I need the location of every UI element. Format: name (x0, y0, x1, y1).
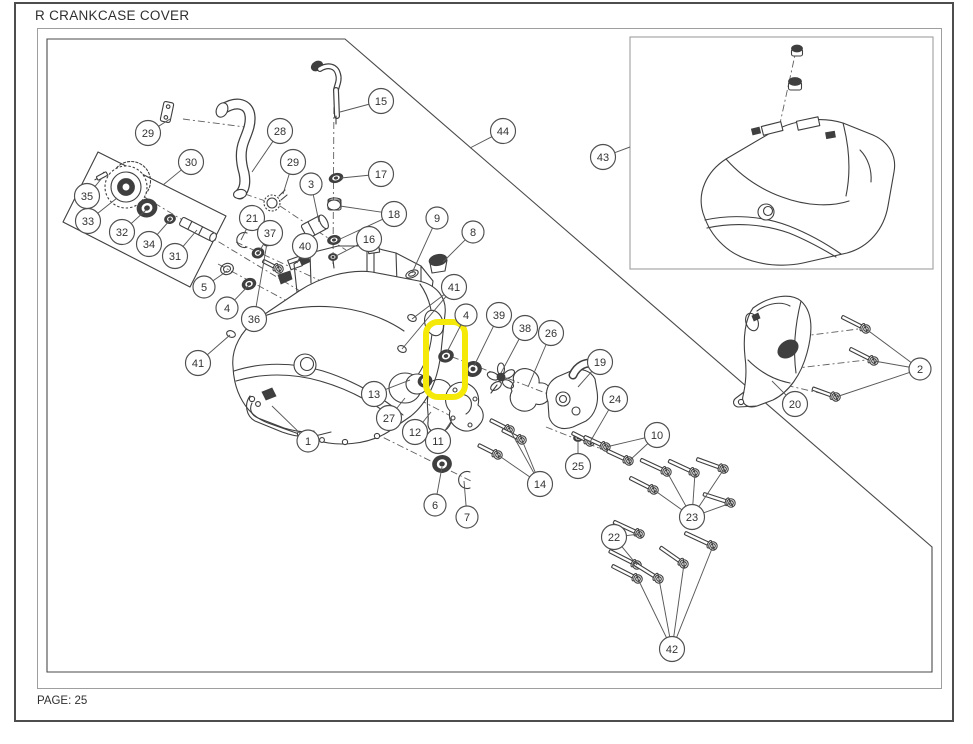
callout-36[interactable]: 36 (242, 307, 267, 332)
callout-8[interactable]: 8 (462, 221, 484, 243)
callout-18[interactable]: 18 (382, 202, 407, 227)
svg-text:14: 14 (534, 479, 546, 491)
svg-text:31: 31 (169, 251, 181, 263)
svg-text:6: 6 (432, 500, 438, 512)
callout-2[interactable]: 2 (909, 358, 931, 380)
callout-40[interactable]: 40 (293, 234, 318, 259)
svg-text:18: 18 (388, 209, 400, 221)
svg-text:41: 41 (192, 358, 204, 370)
callout-5[interactable]: 5 (193, 276, 215, 298)
svg-text:10: 10 (651, 430, 663, 442)
svg-text:28: 28 (274, 126, 286, 138)
svg-text:41: 41 (448, 282, 460, 294)
callout-41[interactable]: 41 (186, 351, 211, 376)
svg-text:17: 17 (375, 169, 387, 181)
seal-ring (164, 213, 177, 225)
svg-text:2: 2 (917, 364, 923, 376)
callout-4[interactable]: 4 (455, 304, 477, 326)
callout-33[interactable]: 33 (76, 209, 101, 234)
svg-text:39: 39 (493, 310, 505, 322)
seal-ring (431, 454, 453, 475)
o-ring (405, 268, 420, 279)
callout-19[interactable]: 19 (588, 350, 613, 375)
svg-text:26: 26 (545, 328, 557, 340)
svg-text:20: 20 (789, 399, 801, 411)
callout-16[interactable]: 16 (357, 227, 382, 252)
svg-text:3: 3 (308, 179, 314, 191)
callout-15[interactable]: 15 (369, 89, 394, 114)
bolt (476, 441, 503, 460)
svg-text:7: 7 (464, 512, 470, 524)
svg-text:29: 29 (287, 157, 299, 169)
bolt (639, 456, 673, 478)
seal-ring (329, 254, 338, 261)
callout-42[interactable]: 42 (660, 637, 685, 662)
callout-27[interactable]: 27 (377, 406, 402, 431)
outer-cover-part-20 (734, 296, 811, 407)
callout-24[interactable]: 24 (603, 387, 628, 412)
callout-41[interactable]: 41 (442, 275, 467, 300)
callout-14[interactable]: 14 (528, 472, 553, 497)
svg-text:23: 23 (686, 512, 698, 524)
exploded-view-drawing: 1234456789101112131415161718192021222324… (0, 0, 973, 744)
bolt (840, 313, 872, 335)
svg-text:38: 38 (519, 323, 531, 335)
shaft-31 (179, 217, 218, 243)
bolt (683, 529, 718, 551)
callout-30[interactable]: 30 (179, 150, 204, 175)
svg-text:5: 5 (201, 282, 207, 294)
svg-text:24: 24 (609, 394, 621, 406)
bolt (702, 490, 736, 508)
filler-cap-8 (428, 253, 448, 273)
callout-29[interactable]: 29 (281, 150, 306, 175)
callout-10[interactable]: 10 (645, 423, 670, 448)
svg-text:37: 37 (264, 228, 276, 240)
svg-text:25: 25 (572, 461, 584, 473)
bolt (605, 447, 634, 467)
svg-text:4: 4 (224, 303, 230, 315)
bolt (628, 474, 660, 496)
svg-text:8: 8 (470, 227, 476, 239)
svg-text:27: 27 (383, 413, 395, 425)
seal-ring (241, 276, 258, 291)
svg-text:44: 44 (497, 126, 509, 138)
callout-20[interactable]: 20 (783, 392, 808, 417)
callout-3[interactable]: 3 (300, 173, 322, 195)
bolt (658, 544, 690, 570)
svg-text:35: 35 (81, 191, 93, 203)
callout-12[interactable]: 12 (403, 420, 428, 445)
svg-text:42: 42 (666, 644, 678, 656)
breather-hose-group (160, 101, 287, 211)
svg-text:21: 21 (246, 213, 258, 225)
svg-text:15: 15 (375, 96, 387, 108)
circlip-21 (237, 233, 247, 248)
svg-text:34: 34 (143, 239, 155, 251)
callout-22[interactable]: 22 (602, 525, 627, 550)
bolt (667, 457, 701, 479)
callout-7[interactable]: 7 (456, 506, 478, 528)
callout-11[interactable]: 11 (426, 429, 451, 454)
svg-text:36: 36 (248, 314, 260, 326)
callout-6[interactable]: 6 (424, 494, 446, 516)
callout-17[interactable]: 17 (369, 162, 394, 187)
callout-4[interactable]: 4 (216, 297, 238, 319)
callout-37[interactable]: 37 (258, 221, 283, 246)
inset-assembled-engine (701, 45, 894, 265)
svg-text:11: 11 (432, 436, 443, 448)
callout-38[interactable]: 38 (513, 316, 538, 341)
callout-9[interactable]: 9 (426, 207, 448, 229)
callout-29[interactable]: 29 (136, 121, 161, 146)
svg-text:30: 30 (185, 157, 197, 169)
svg-text:22: 22 (608, 532, 620, 544)
bolt (811, 385, 841, 403)
pump-gasket-26 (510, 369, 550, 412)
svg-text:40: 40 (299, 241, 311, 253)
callout-32[interactable]: 32 (110, 220, 135, 245)
callout-43[interactable]: 43 (591, 145, 616, 170)
hose-bracket-29 (160, 101, 174, 123)
callout-13[interactable]: 13 (362, 382, 387, 407)
bolt (695, 455, 729, 474)
callout-35[interactable]: 35 (75, 184, 100, 209)
svg-text:4: 4 (463, 310, 469, 322)
bolt (848, 345, 880, 367)
callout-1[interactable]: 1 (297, 430, 319, 452)
callout-26[interactable]: 26 (539, 321, 564, 346)
svg-text:19: 19 (594, 357, 606, 369)
parts-catalog-page: R CRANKCASE COVER PAGE: 25 (0, 0, 973, 744)
svg-text:33: 33 (82, 216, 94, 228)
callout-28[interactable]: 28 (268, 119, 293, 144)
callout-31[interactable]: 31 (163, 244, 188, 269)
svg-text:43: 43 (597, 152, 609, 164)
svg-text:9: 9 (434, 213, 440, 225)
svg-text:12: 12 (409, 427, 421, 439)
callout-34[interactable]: 34 (137, 232, 162, 257)
svg-text:16: 16 (363, 234, 375, 246)
svg-text:29: 29 (142, 128, 154, 140)
callout-23[interactable]: 23 (680, 505, 705, 530)
seal-ring (251, 246, 266, 260)
callout-25[interactable]: 25 (566, 454, 591, 479)
callout-39[interactable]: 39 (487, 303, 512, 328)
svg-text:1: 1 (305, 436, 311, 448)
svg-text:32: 32 (116, 227, 128, 239)
svg-text:13: 13 (368, 389, 380, 401)
o-ring (328, 200, 341, 210)
callout-44[interactable]: 44 (491, 119, 516, 144)
